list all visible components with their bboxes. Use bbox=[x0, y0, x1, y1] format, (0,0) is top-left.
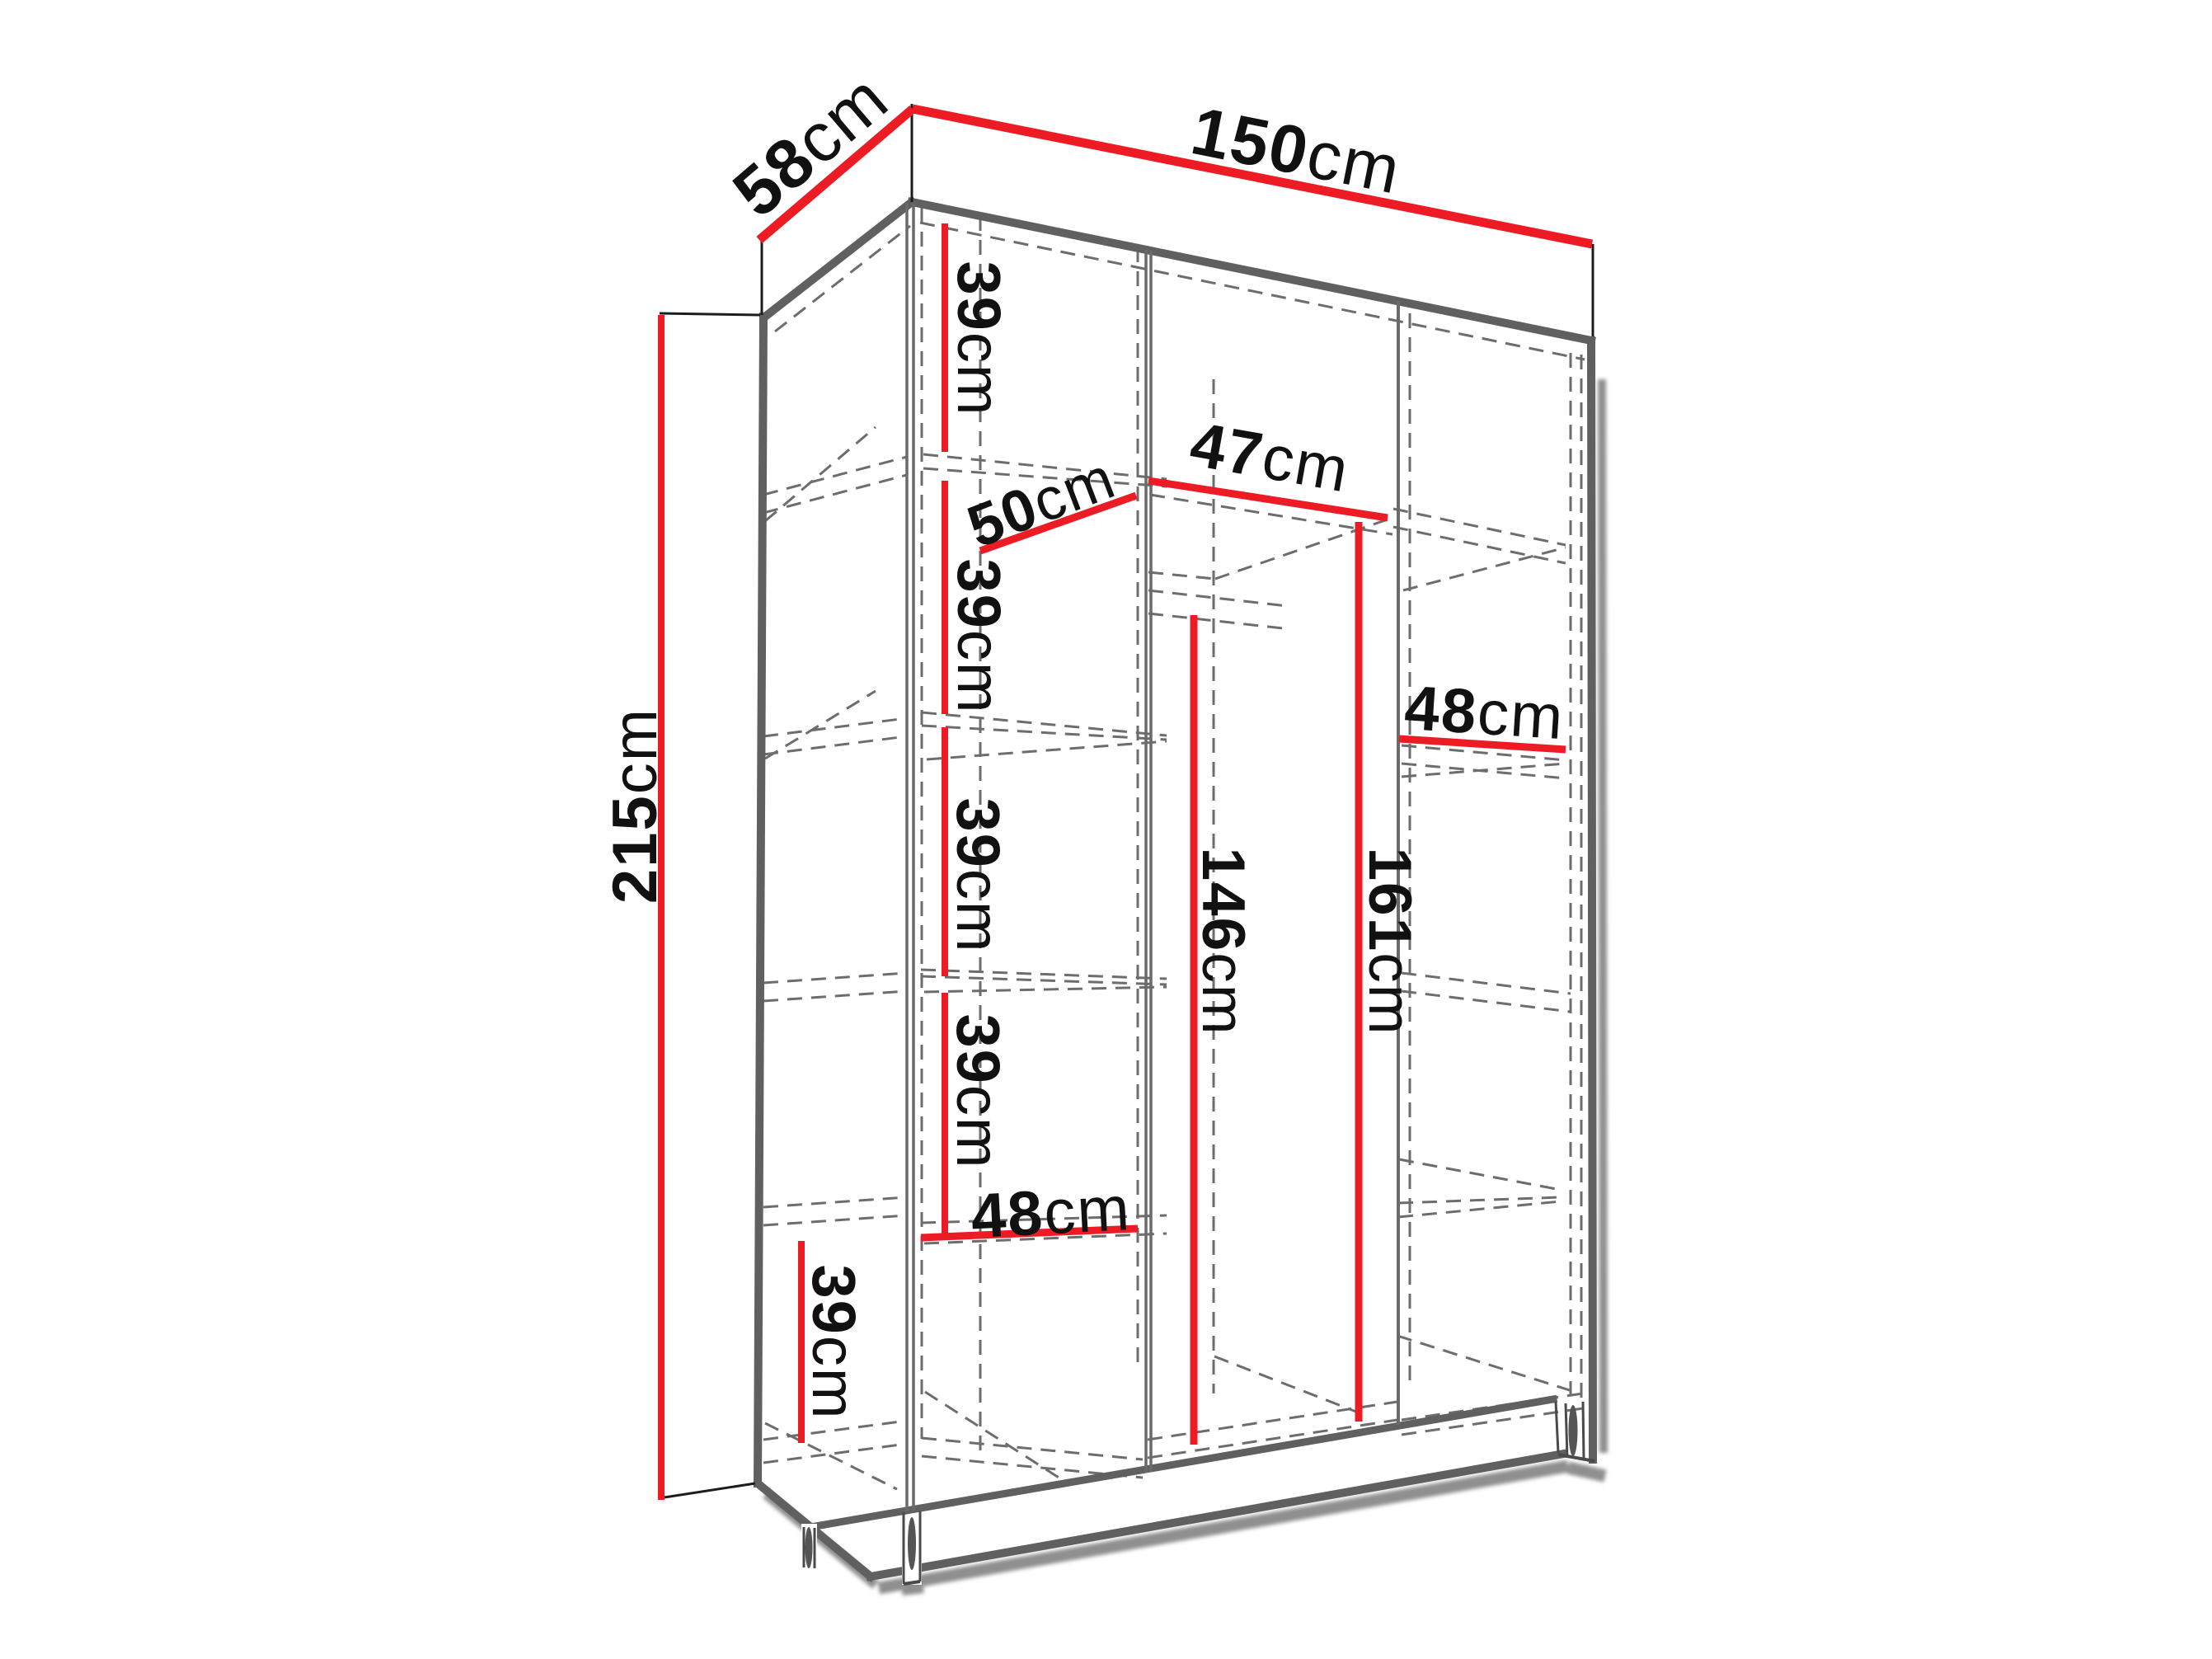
svg-text:215cm: 215cm bbox=[600, 707, 670, 904]
svg-text:39cm: 39cm bbox=[944, 1014, 1012, 1170]
svg-text:39cm: 39cm bbox=[945, 261, 1013, 417]
svg-text:48cm: 48cm bbox=[1402, 673, 1566, 753]
svg-text:161cm: 161cm bbox=[1356, 847, 1423, 1036]
svg-text:39cm: 39cm bbox=[800, 1265, 868, 1421]
svg-text:48cm: 48cm bbox=[970, 1173, 1133, 1252]
svg-text:39cm: 39cm bbox=[944, 798, 1012, 954]
svg-text:146cm: 146cm bbox=[1190, 847, 1256, 1036]
svg-text:39cm: 39cm bbox=[945, 559, 1013, 715]
